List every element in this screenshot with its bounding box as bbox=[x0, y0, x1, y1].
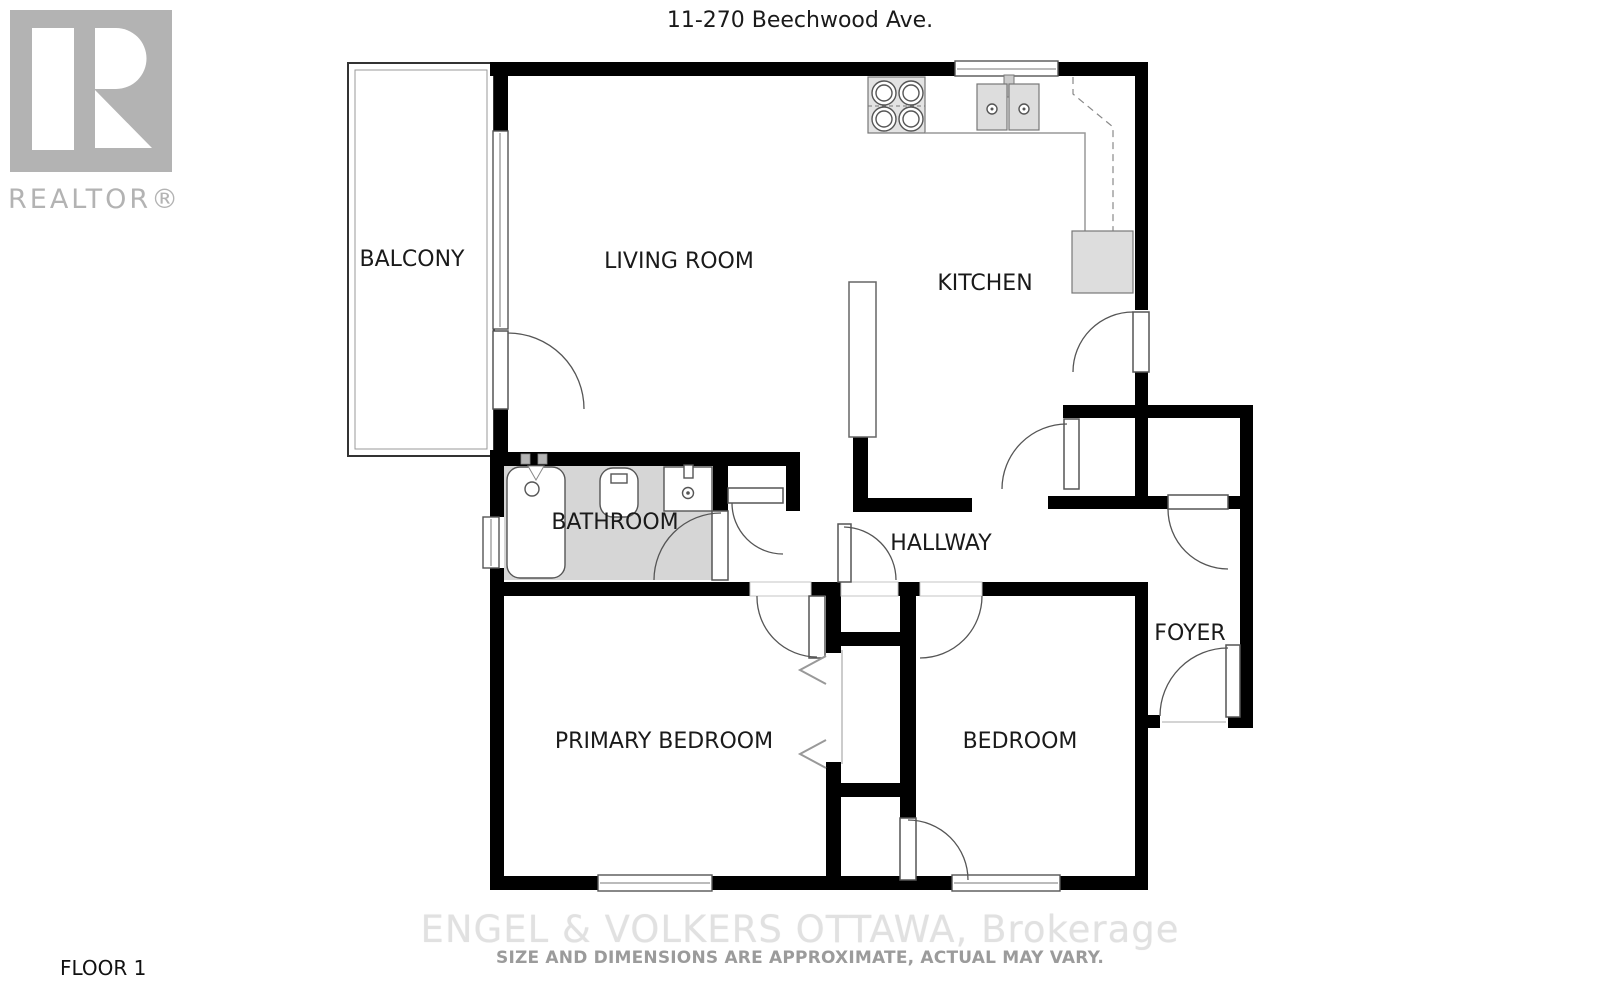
room-label-living-room: LIVING ROOM bbox=[604, 249, 754, 274]
room-label-bathroom: BATHROOM bbox=[551, 510, 678, 535]
hall-closet-door door-swing-icon bbox=[1002, 419, 1079, 489]
kitchen-fixtures bbox=[849, 75, 1133, 437]
stove-icon bbox=[868, 77, 925, 133]
room-label-kitchen: KITCHEN bbox=[937, 271, 1032, 296]
bedroom-closet-door door-swing-icon bbox=[900, 818, 968, 880]
room-label-hallway: HALLWAY bbox=[890, 531, 992, 556]
kitchen-door door-swing-icon bbox=[1073, 312, 1149, 372]
window-icon bbox=[598, 875, 712, 891]
room-label-primary-bedroom: PRIMARY BEDROOM bbox=[555, 729, 773, 754]
floor-label: FLOOR 1 bbox=[60, 956, 146, 980]
room-label-balcony: BALCONY bbox=[360, 247, 466, 272]
linen-closet-door door-swing-icon bbox=[728, 488, 783, 554]
upper-cabinet-dashed-line bbox=[1073, 77, 1113, 231]
hallway-closet-door door-swing-icon bbox=[838, 524, 898, 596]
floor-plan-page: REALTOR® 11-270 Beechwood Ave. bbox=[0, 0, 1600, 1000]
window-icon bbox=[493, 131, 508, 329]
disclaimer-text: SIZE AND DIMENSIONS ARE APPROXIMATE, ACT… bbox=[0, 948, 1600, 968]
kitchen-double-sink-icon bbox=[977, 75, 1039, 130]
bifold-closet-door-icon bbox=[800, 650, 842, 768]
kitchen-counter-edge bbox=[925, 133, 1085, 232]
room-label-bedroom: BEDROOM bbox=[963, 729, 1078, 754]
bathroom-sink-icon bbox=[664, 465, 712, 511]
refrigerator-icon bbox=[1072, 231, 1133, 293]
entry-door door-swing-icon bbox=[1160, 645, 1240, 722]
room-label-foyer: FOYER bbox=[1154, 621, 1225, 646]
brokerage-watermark: ENGEL & VOLKERS OTTAWA, Brokerage bbox=[0, 908, 1600, 951]
foyer-closet-door door-swing-icon bbox=[1168, 495, 1228, 569]
window-icon bbox=[955, 61, 1058, 76]
kitchen-pass-through-wall bbox=[849, 282, 876, 437]
bedroom-door door-swing-icon bbox=[920, 582, 982, 658]
window-icon bbox=[483, 517, 499, 568]
floor-plan-drawing: BALCONY LIVING ROOM KITCHEN BATHROOM HAL… bbox=[0, 0, 1600, 1000]
balcony-door door-swing-icon bbox=[493, 331, 584, 409]
